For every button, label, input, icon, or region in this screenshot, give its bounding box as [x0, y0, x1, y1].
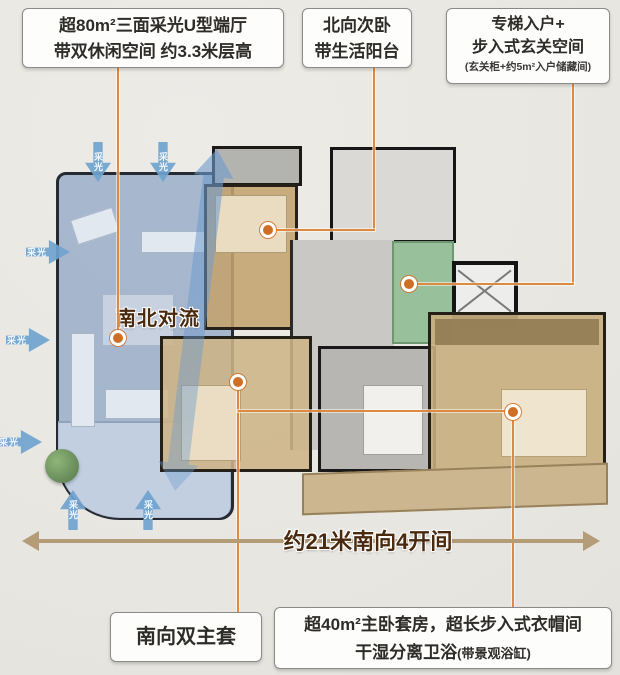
callout-entry-line2: 步入式玄关空间 — [447, 36, 609, 59]
floorplan-marketing-image: 采光 采光 采光 采光 采光 采光 采光 南北对流 约21米南向4开间 超80m… — [0, 0, 620, 675]
daylight-arrow-label: 采光 — [0, 436, 19, 449]
middle-bedroom-area — [318, 346, 436, 472]
leader-line-north-bedroom — [373, 66, 375, 230]
leader-line-master-suite — [512, 411, 514, 608]
callout-living-line2: 带双休闲空间 约3.3米层高 — [23, 39, 283, 65]
leader-line-entry — [572, 84, 574, 284]
daylight-arrow-label: 采光 — [135, 490, 161, 530]
marker-dot-north-bedroom — [263, 225, 273, 235]
callout-master-suite-note: (带景观浴缸) — [457, 646, 531, 661]
callout-double-master: 南向双主套 — [110, 612, 262, 662]
daylight-arrow-label: 采光 — [150, 142, 176, 182]
private-elevator-shaft — [452, 261, 518, 319]
marker-dot-master-left — [233, 377, 243, 387]
callout-living-line1: 超80m²三面采光U型端厅 — [23, 13, 283, 39]
terrace-tree — [45, 449, 79, 483]
callout-north-line1: 北向次卧 — [303, 13, 411, 39]
daylight-arrow-label: 采光 — [7, 334, 27, 347]
dimension-arrowhead-left-icon — [22, 531, 39, 551]
callout-double-master-label: 南向双主套 — [111, 613, 261, 661]
daylight-arrow-label: 采光 — [85, 142, 111, 182]
master-suite-right-area — [428, 312, 606, 486]
daylight-arrow-right-icon: 采光 — [0, 430, 42, 454]
daylight-arrow-right-icon: 采光 — [26, 240, 70, 264]
daylight-arrow-up-icon: 采光 — [135, 490, 161, 530]
callout-master-suite-line2-text: 干湿分离卫浴 — [355, 643, 457, 662]
marker-dot-living — [113, 333, 123, 343]
callout-master-suite-line2: 干湿分离卫浴(带景观浴缸) — [275, 639, 611, 668]
marker-dot-master-right — [508, 407, 518, 417]
leader-line-entry — [409, 283, 574, 285]
daylight-arrow-right-icon: 采光 — [6, 328, 50, 352]
walk-in-closet-band — [435, 319, 599, 345]
callout-north-line2: 带生活阳台 — [303, 39, 411, 65]
leader-line-double-master — [237, 382, 239, 612]
cabinet-furniture — [70, 207, 120, 245]
callout-north-bedroom: 北向次卧 带生活阳台 — [302, 8, 412, 68]
daylight-arrow-down-icon: 采光 — [85, 142, 111, 182]
convection-label: 南北对流 — [116, 302, 200, 331]
bed — [215, 195, 287, 253]
callout-entry-note: (玄关柜+约5m²入户储藏间) — [447, 59, 609, 75]
marker-dot-entry — [404, 279, 414, 289]
callout-living-hall: 超80m²三面采光U型端厅 带双休闲空间 约3.3米层高 — [22, 8, 284, 68]
callout-master-suite-line1: 超40m²主卧套房，超长步入式衣帽间 — [275, 611, 611, 639]
leader-line-master-suite — [238, 410, 514, 412]
sofa-furniture — [71, 333, 95, 427]
daylight-arrow-label: 采光 — [60, 490, 86, 530]
daylight-arrow-up-icon: 采光 — [60, 490, 86, 530]
dimension-arrowhead-right-icon — [583, 531, 600, 551]
daylight-arrow-down-icon: 采光 — [150, 142, 176, 182]
daylight-arrow-label: 采光 — [27, 246, 47, 259]
leader-line-living — [117, 66, 119, 338]
callout-entry-line1: 专梯入户+ — [447, 13, 609, 36]
leader-line-north-bedroom — [268, 229, 375, 231]
callout-entry: 专梯入户+ 步入式玄关空间 (玄关柜+约5m²入户储藏间) — [446, 8, 610, 84]
callout-master-suite: 超40m²主卧套房，超长步入式衣帽间 干湿分离卫浴(带景观浴缸) — [274, 607, 612, 669]
dimension-label: 约21米南向4开间 — [262, 524, 474, 556]
bed — [363, 385, 423, 455]
